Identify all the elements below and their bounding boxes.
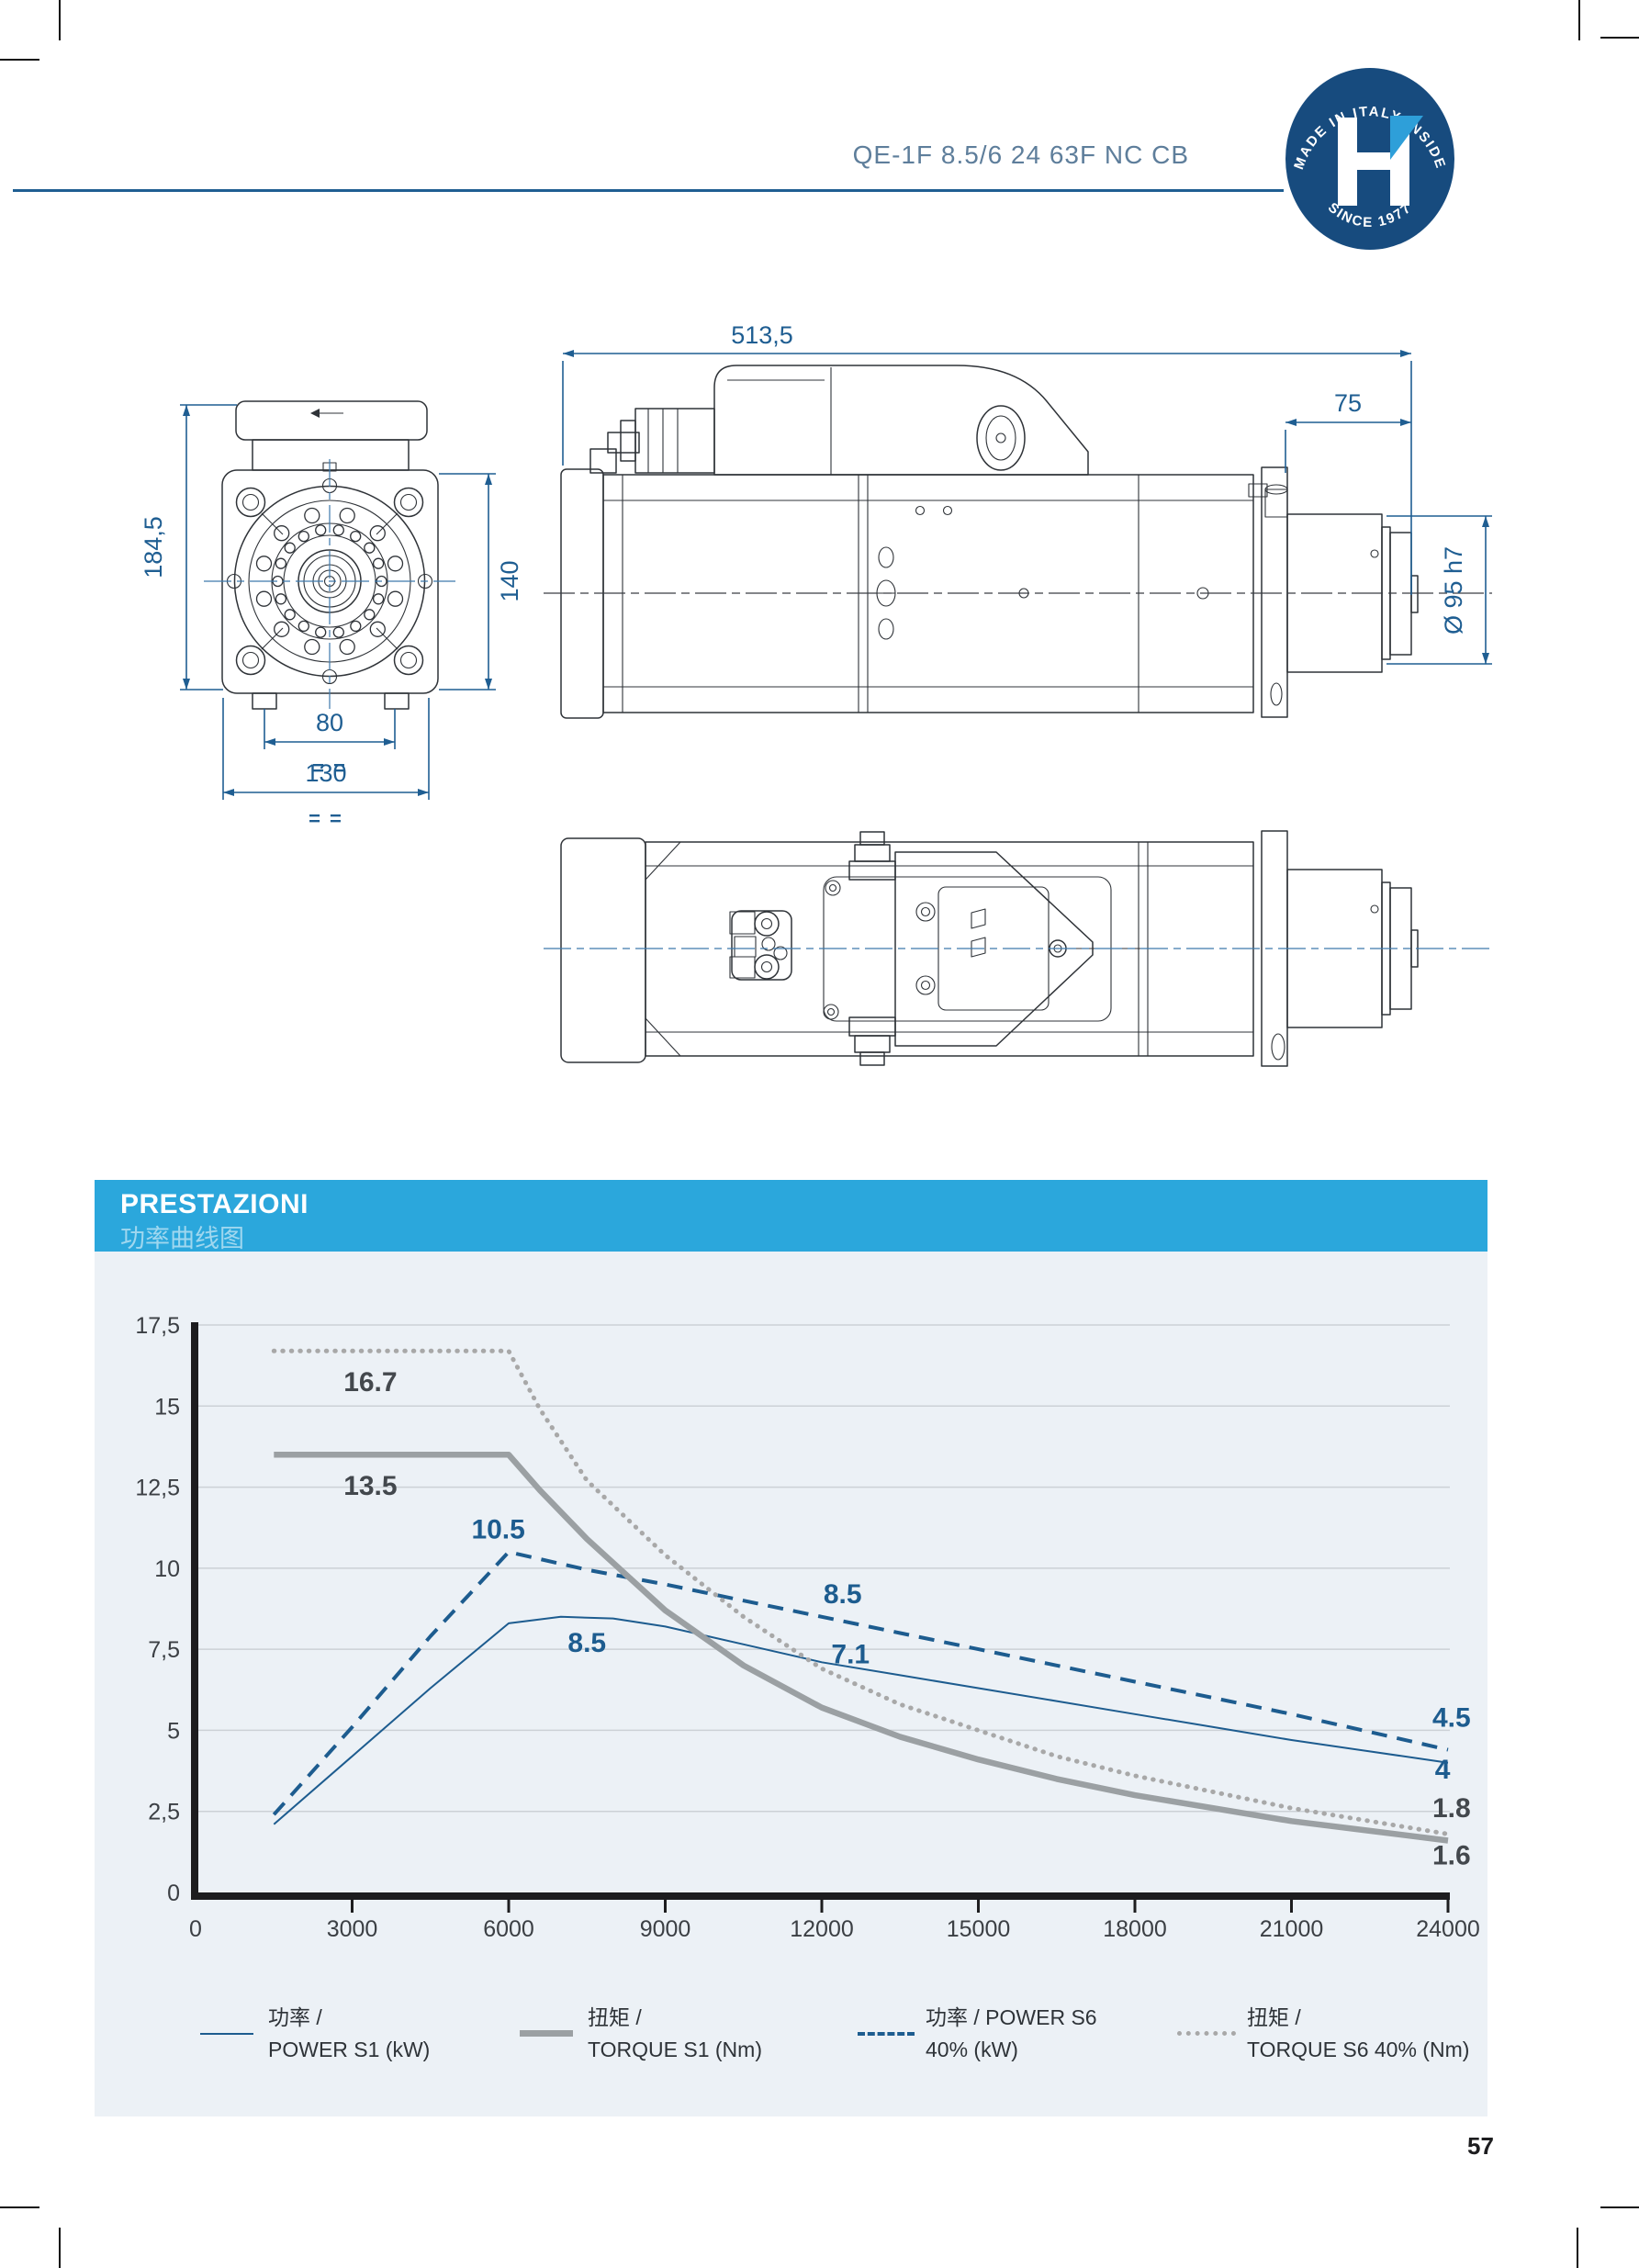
performance-subtitle: 功率曲线图 <box>120 1218 244 1254</box>
crop-mark-bottom-left-v <box>59 2228 61 2268</box>
legend-swatch-power-s6 <box>858 2032 915 2036</box>
front-view: 184,5 140 80 = = 130 = = <box>140 401 523 830</box>
header-rule <box>13 189 1284 192</box>
svg-text:15000: 15000 <box>947 1916 1011 1942</box>
svg-text:10.5: 10.5 <box>471 1514 524 1544</box>
legend-item-torque-s1: 扭矩 / TORQUE S1 (Nm) <box>588 2002 762 2065</box>
svg-text:5: 5 <box>167 1718 180 1744</box>
legend-label-cn: 功率 / POWER S6 <box>926 2002 1097 2034</box>
legend-label-en: 40% (kW) <box>926 2034 1097 2066</box>
legend-label-en: TORQUE S1 (Nm) <box>588 2034 762 2066</box>
dim-75: 75 <box>1334 389 1362 417</box>
legend-label-cn: 扭矩 / <box>588 2002 762 2034</box>
svg-text:8.5: 8.5 <box>567 1628 606 1658</box>
crop-mark-top-left-h <box>0 59 39 61</box>
dim-140: 140 <box>496 560 523 601</box>
svg-text:16.7: 16.7 <box>343 1367 397 1398</box>
crop-mark-top-right-v <box>1578 0 1580 40</box>
svg-text:7,5: 7,5 <box>148 1637 180 1663</box>
svg-text:0: 0 <box>167 1881 180 1906</box>
performance-chart: 0300060009000120001500018000210002400017… <box>95 1252 1487 2116</box>
svg-text:4.5: 4.5 <box>1432 1702 1471 1733</box>
front-dimensions: 184,5 140 80 = = 130 = = <box>140 405 523 830</box>
svg-text:12,5: 12,5 <box>135 1476 180 1501</box>
dim-130-eq: = = <box>309 807 343 830</box>
legend-label-en: POWER S1 (kW) <box>268 2034 430 2066</box>
svg-text:18000: 18000 <box>1103 1916 1167 1942</box>
legend-item-power-s1: 功率 / POWER S1 (kW) <box>268 2002 430 2065</box>
svg-text:1.8: 1.8 <box>1432 1793 1471 1824</box>
legend-item-torque-s6: 扭矩 / TORQUE S6 40% (Nm) <box>1247 2002 1469 2065</box>
dim-130: 130 <box>305 759 346 787</box>
svg-text:9000: 9000 <box>640 1916 691 1942</box>
crop-mark-bottom-right-v <box>1577 2228 1578 2268</box>
svg-text:2,5: 2,5 <box>148 1800 180 1825</box>
crop-mark-bottom-right-h <box>1600 2206 1639 2208</box>
svg-text:12000: 12000 <box>790 1916 854 1942</box>
svg-text:15: 15 <box>154 1394 180 1420</box>
dim-95h7: Ø 95 h7 <box>1440 546 1467 634</box>
crop-mark-bottom-left-h <box>0 2206 39 2208</box>
performance-title: PRESTAZIONI <box>120 1189 309 1220</box>
svg-text:13.5: 13.5 <box>343 1471 397 1501</box>
svg-text:0: 0 <box>189 1916 202 1942</box>
page-number: 57 <box>1467 2132 1494 2161</box>
legend-swatch-torque-s6 <box>1177 2031 1236 2036</box>
page-title: QE-1F 8.5/6 24 63F NC CB <box>853 140 1189 170</box>
legend-label-cn: 扭矩 / <box>1247 2002 1469 2034</box>
svg-text:7.1: 7.1 <box>831 1639 870 1669</box>
legend-swatch-torque-s1 <box>520 2030 573 2037</box>
crop-mark-top-left-v <box>59 0 61 40</box>
svg-text:10: 10 <box>154 1556 180 1582</box>
svg-text:24000: 24000 <box>1416 1916 1480 1942</box>
svg-text:3000: 3000 <box>327 1916 378 1942</box>
svg-text:17,5: 17,5 <box>135 1313 180 1339</box>
svg-text:6000: 6000 <box>483 1916 534 1942</box>
side-view: 513,5 75 Ø 95 h7 <box>544 321 1492 718</box>
dim-80: 80 <box>316 709 343 736</box>
dim-513-5: 513,5 <box>731 321 793 349</box>
crop-mark-top-right-h <box>1600 37 1639 39</box>
technical-drawings: 184,5 140 80 = = 130 = = <box>0 211 1639 1157</box>
dim-184-5: 184,5 <box>140 516 167 578</box>
legend-item-power-s6: 功率 / POWER S6 40% (kW) <box>926 2002 1097 2065</box>
bottom-view <box>544 831 1492 1066</box>
side-dimensions: 513,5 75 Ø 95 h7 <box>563 321 1492 664</box>
legend-swatch-power-s1 <box>200 2033 253 2035</box>
svg-text:21000: 21000 <box>1260 1916 1324 1942</box>
performance-header: PRESTAZIONI 功率曲线图 <box>95 1180 1487 1252</box>
svg-text:8.5: 8.5 <box>824 1579 862 1610</box>
svg-text:4: 4 <box>1435 1755 1451 1785</box>
legend-label-cn: 功率 / <box>268 2002 430 2034</box>
legend-label-en: TORQUE S6 40% (Nm) <box>1247 2034 1469 2066</box>
svg-text:1.6: 1.6 <box>1432 1840 1471 1870</box>
